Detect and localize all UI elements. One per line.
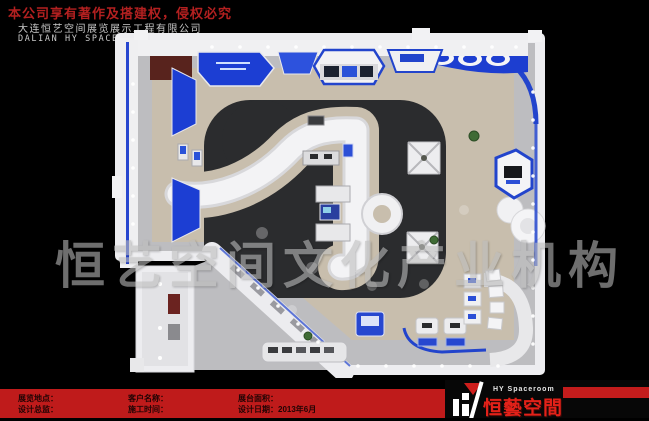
booth-top-view [112,28,548,378]
title-block-column-1: 展览地点： 设计总监： [18,393,58,415]
field-booth-area: 展台面积： [238,393,316,404]
booth-render [112,28,548,378]
title-block-column-3: 展台面积： 设计日期：2013年6月 [238,393,316,415]
canopy-tent-1 [408,142,440,174]
brand-name-cn: 恒藝空間 [483,393,563,420]
watermark-text: 恒艺空间文化产业机构 [55,226,630,298]
company-logo-panel: HY Spaceroom 恒藝空間 [445,380,649,421]
field-design-date: 设计日期：2013年6月 [238,404,316,415]
logo-red-bar [563,387,649,398]
reception-counter [262,342,347,362]
field-client-name: 客户名称： [128,393,168,404]
field-construction-time: 施工时间： [128,404,168,415]
hy-logo-icon [451,383,487,419]
title-block-column-2: 客户名称： 施工时间： [128,393,168,415]
design-sheet: 本公司享有著作及搭建权，侵权必究 大连恒艺空间展览展示工程有限公司 DALIAN… [0,0,649,421]
hexagon-display-alcove [496,150,532,198]
field-exhibition-location: 展览地点： [18,393,58,404]
brand-name-en: HY Spaceroom [493,386,555,393]
blue-podium [356,312,384,336]
field-design-director: 设计总监： [18,404,58,415]
